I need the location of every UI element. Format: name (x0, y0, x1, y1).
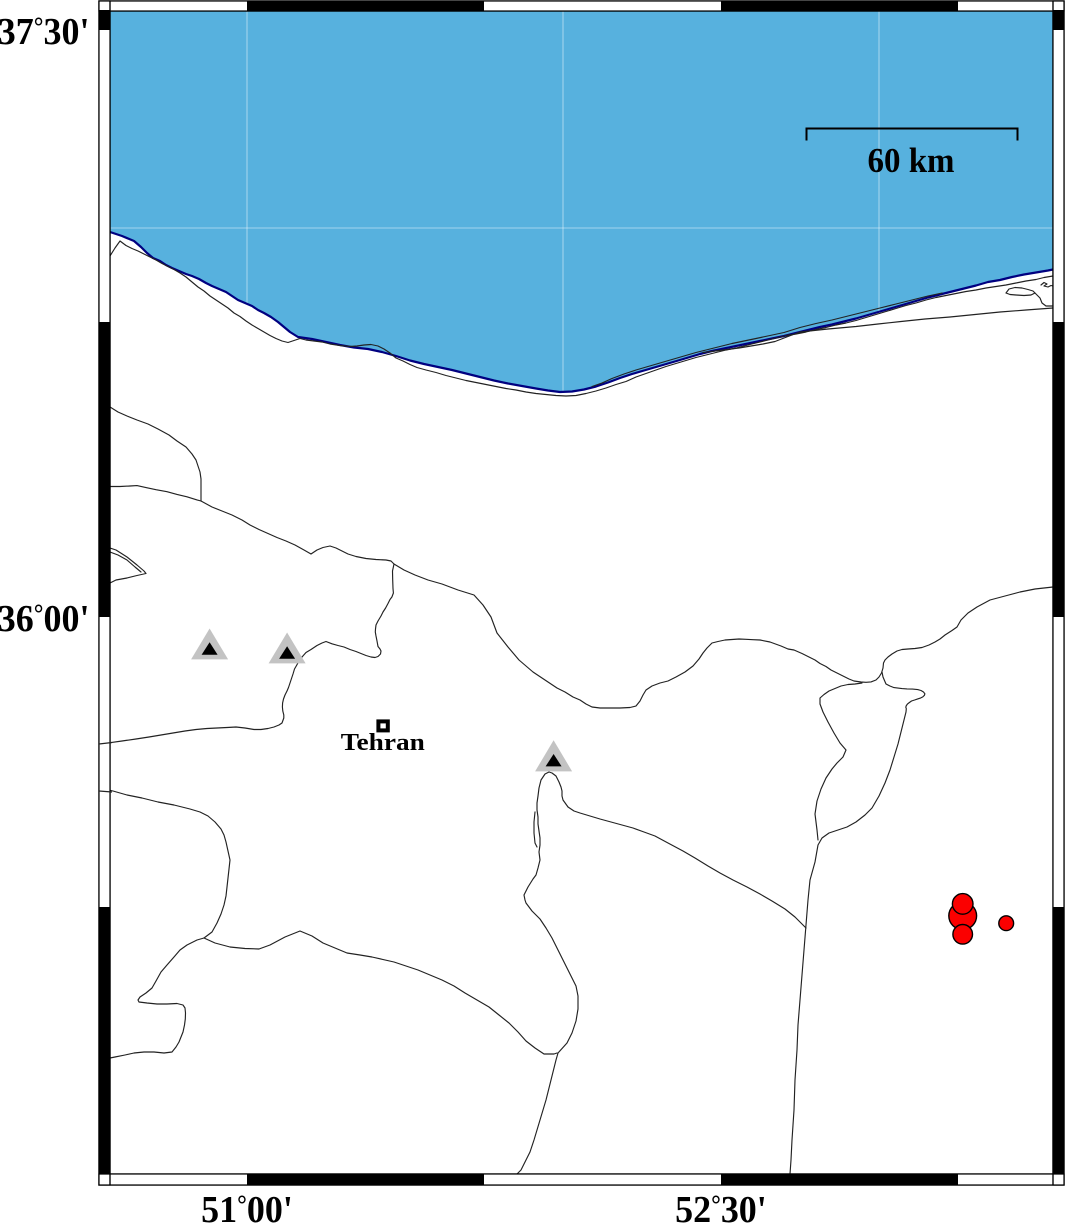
svg-text:52°30': 52°30' (675, 1189, 767, 1223)
svg-text:51°00': 51°00' (201, 1189, 293, 1223)
svg-text:60 km: 60 km (868, 142, 955, 180)
svg-text:36°00': 36°00' (0, 598, 89, 640)
svg-text:Tehran: Tehran (341, 730, 425, 756)
svg-text:37°30': 37°30' (0, 11, 89, 53)
